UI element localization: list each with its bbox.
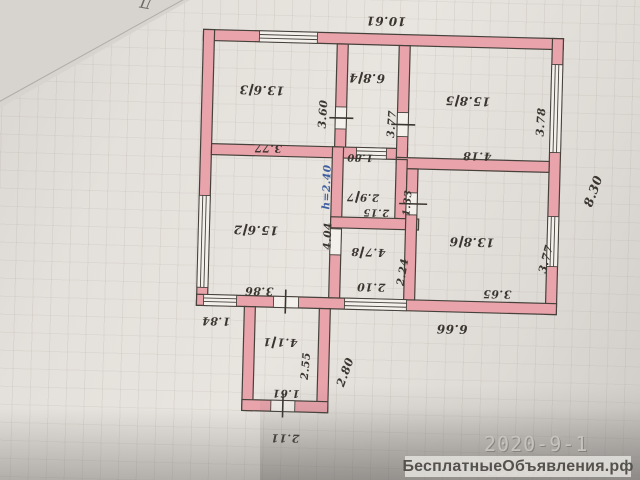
dim-label-2.15: 2.15 (363, 206, 390, 217)
room-label-2: 215.6 (233, 222, 279, 237)
dim-label-4.18: 4.18 (462, 149, 491, 163)
room-label-6: 613.8 (449, 234, 495, 249)
window-right-room5 (550, 64, 563, 152)
dim-label-2.10: 2.10 (356, 280, 385, 294)
dim-label-1.33: 1.33 (401, 189, 414, 216)
room-label-4: 46.8 (348, 71, 385, 86)
dim-label-3.86: 3.86 (244, 284, 273, 298)
dim-label-3.77: 3.77 (254, 142, 282, 154)
dim-label-6.66: 6.66 (436, 322, 467, 337)
dim-label-2.11: 2.11 (270, 431, 299, 445)
room-label-1: 14.1 (263, 335, 298, 349)
dim-label-1.84: 1.84 (201, 314, 230, 328)
porch-wall-right (317, 308, 331, 412)
dim-label-2.55: 2.55 (299, 352, 313, 381)
dim-label-3.77: 3.77 (385, 110, 399, 138)
dim-label-10.61: 10.61 (366, 14, 406, 29)
dim-label-3.60: 3.60 (316, 99, 331, 129)
window-left (197, 195, 210, 287)
window-top (259, 31, 317, 44)
dim-label-1.80: 1.80 (347, 151, 374, 162)
porch-wall-left (242, 306, 256, 410)
room-label-3: 313.6 (239, 82, 285, 97)
window-bottom-room8 (344, 298, 406, 311)
dim-label-1.61: 1.61 (272, 387, 300, 399)
watermark-text: БесплатныеОбъявления.рф (402, 458, 633, 476)
room-label-7: 72.9 (346, 191, 379, 204)
dim-label-4.04: 4.04 (322, 222, 335, 250)
room-label-5: 515.8 (445, 93, 491, 108)
floorplan-drawing (0, 0, 640, 480)
wall-room4-room5 (396, 45, 410, 157)
dim-label-3.65: 3.65 (482, 287, 511, 301)
window-bottom-room2 (203, 294, 236, 306)
dim-label-3.78: 3.78 (534, 107, 549, 137)
wall-room3-room4 (334, 44, 348, 154)
room-label-8: 84.7 (351, 245, 386, 259)
dim-label-h2.40: h=2.40 (320, 164, 334, 209)
watermark-bar: БесплатныеОбъявления.рф (405, 456, 631, 477)
floor-plan-photo: 313.646.8515.8215.672.984.7613.814.110.6… (0, 0, 640, 480)
wall-top (203, 29, 563, 49)
